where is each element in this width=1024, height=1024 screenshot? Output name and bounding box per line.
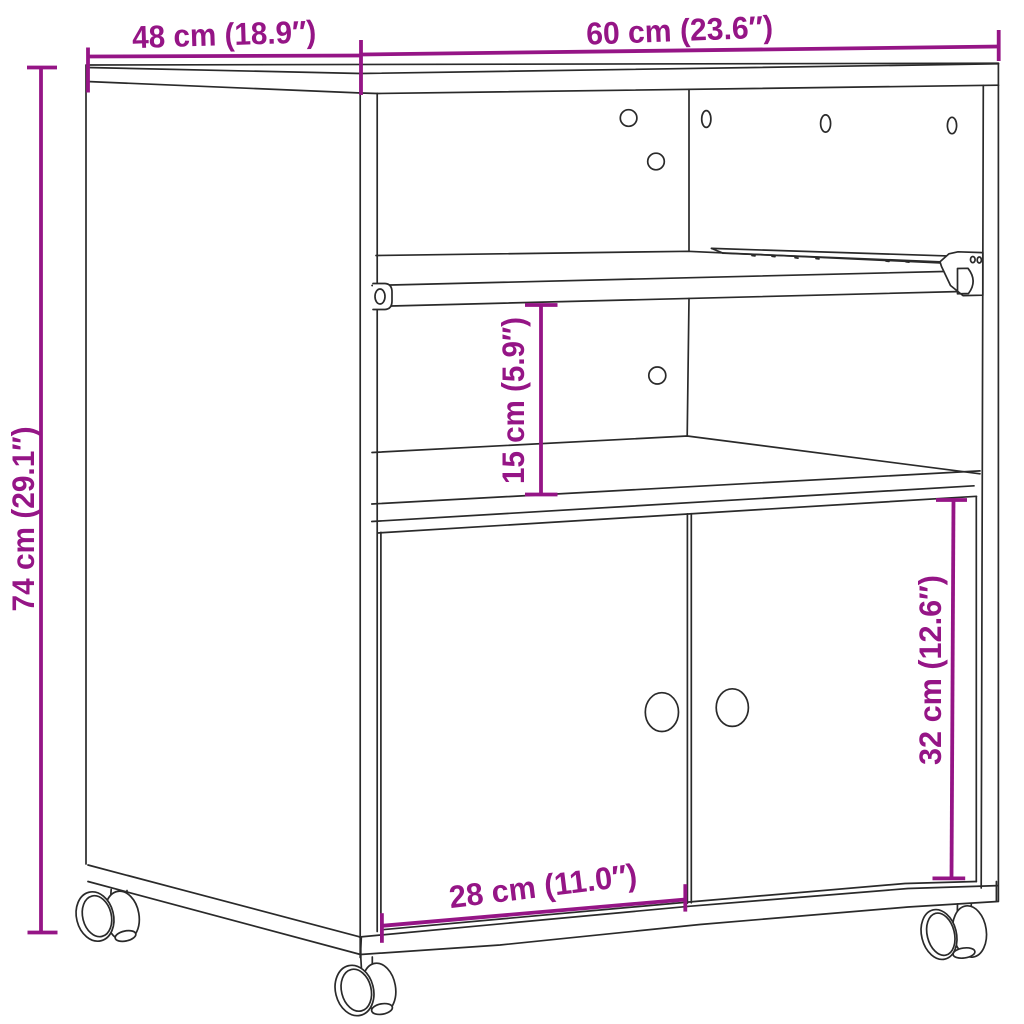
svg-text:15 cm (5.9″): 15 cm (5.9″) <box>495 317 531 484</box>
svg-text:48 cm (18.9″): 48 cm (18.9″) <box>132 13 317 55</box>
svg-text:74 cm (29.1″): 74 cm (29.1″) <box>5 427 41 612</box>
svg-text:60 cm (23.6″): 60 cm (23.6″) <box>585 8 773 51</box>
svg-text:32 cm (12.6″): 32 cm (12.6″) <box>912 575 948 765</box>
